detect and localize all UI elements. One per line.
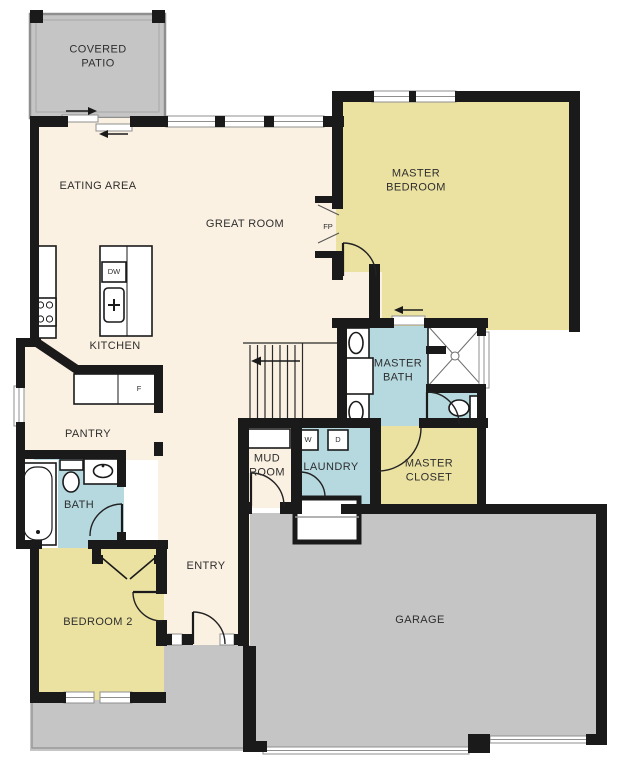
toilet-tank — [60, 460, 83, 470]
patio-post-right — [152, 10, 165, 23]
fireplace-cap-bottom — [315, 251, 342, 258]
dishwasher-box — [102, 262, 126, 282]
dryer-box — [328, 430, 348, 450]
shower-drain — [451, 352, 459, 360]
garage-floor — [245, 513, 602, 751]
tub-drain — [36, 530, 40, 534]
covered-patio-floor — [30, 14, 165, 118]
toilet-bowl — [63, 472, 79, 492]
master-toilet-bowl — [449, 400, 469, 416]
entry-sidelight-right — [220, 634, 234, 645]
patio-slider-panel-2 — [96, 124, 132, 131]
floor-plan-drawing — [0, 0, 623, 768]
fridge-counter — [74, 374, 160, 404]
floor-plan: COVERED PATIO EATING AREA GREAT ROOM MAS… — [0, 0, 623, 768]
fireplace-cap-top — [315, 196, 342, 203]
linen-tower — [343, 358, 373, 394]
master-sink-1 — [349, 333, 363, 354]
patio-post-left — [30, 10, 43, 23]
master-bath-slider — [392, 316, 425, 325]
mudroom-bench — [246, 429, 290, 448]
